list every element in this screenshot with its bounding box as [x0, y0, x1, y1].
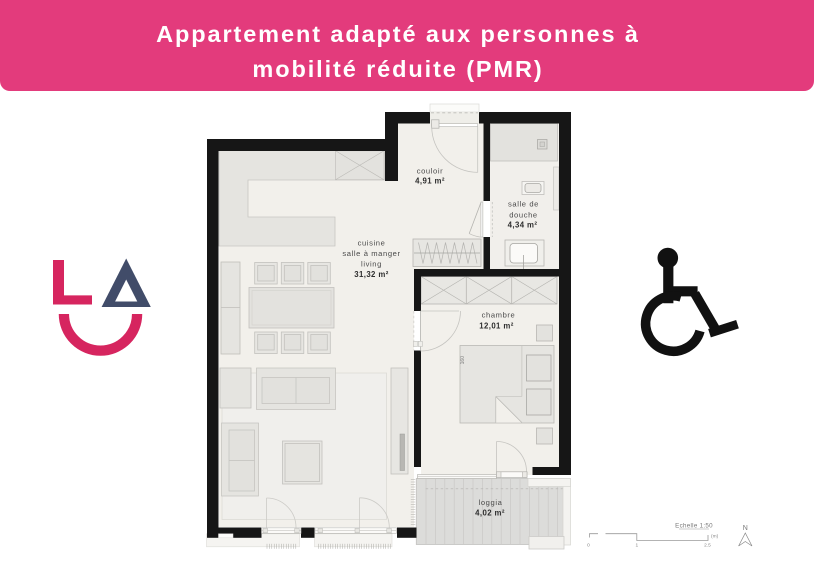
svg-text:cuisine: cuisine: [358, 239, 386, 248]
svg-text:couloir: couloir: [417, 167, 444, 176]
svg-text:N: N: [743, 525, 748, 532]
svg-text:salle à manger: salle à manger: [342, 249, 400, 258]
svg-text:31,32 m²: 31,32 m²: [354, 270, 388, 279]
svg-text:salle de: salle de: [508, 200, 539, 209]
svg-text:160: 160: [460, 356, 466, 365]
svg-text:douche: douche: [509, 211, 538, 220]
svg-text:(m): (m): [711, 534, 719, 540]
svg-text:Echelle 1:50: Echelle 1:50: [675, 523, 713, 530]
svg-text:loggia: loggia: [479, 498, 503, 507]
svg-text:4,34 m²: 4,34 m²: [508, 221, 538, 230]
svg-text:0: 0: [587, 543, 590, 549]
svg-text:4,91 m²: 4,91 m²: [415, 177, 445, 186]
svg-text:living: living: [361, 260, 382, 269]
svg-text:2.5: 2.5: [704, 543, 711, 549]
svg-text:1: 1: [635, 543, 638, 549]
svg-text:4,02 m²: 4,02 m²: [475, 509, 505, 518]
svg-text:12,01 m²: 12,01 m²: [479, 322, 513, 331]
svg-text:chambre: chambre: [482, 311, 516, 320]
